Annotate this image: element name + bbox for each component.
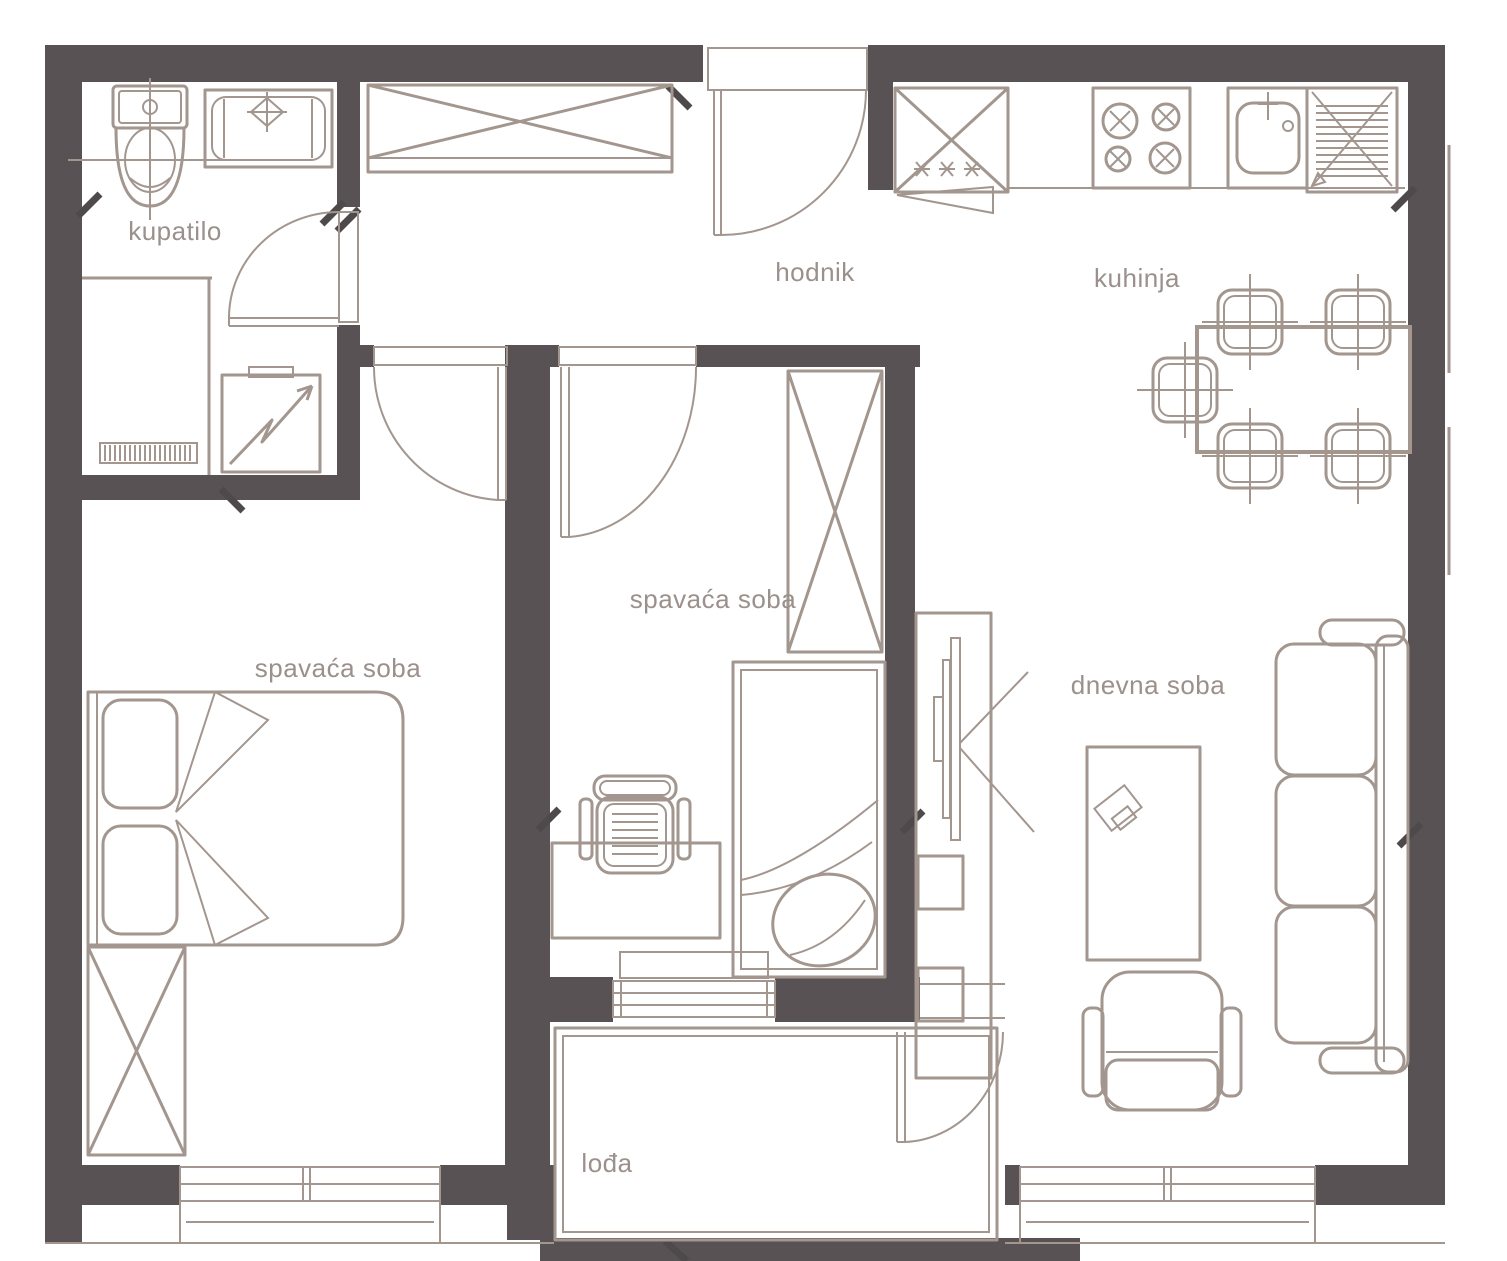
- desk-icon: [552, 843, 720, 938]
- double-bed-icon: [88, 692, 403, 945]
- wardrobe-icon: [88, 947, 185, 1155]
- armchair-icon: [1083, 972, 1241, 1110]
- radiator-icon: [100, 443, 197, 463]
- bathroom-niche-lines: [82, 278, 212, 475]
- dining-chair-icon: [1310, 274, 1406, 370]
- tv-cabinet-icon: [916, 613, 1034, 1078]
- dining-chair-icon: [1202, 408, 1298, 504]
- single-bed-icon: [733, 662, 888, 980]
- dining-table-icon: [1137, 274, 1410, 504]
- bathtub-icon: [205, 90, 332, 167]
- tall-wardrobe-icon: [788, 371, 882, 652]
- dining-chair-icon: [1310, 408, 1406, 504]
- loggia-glazing: [555, 1028, 997, 1240]
- dining-chair-icon: [1202, 274, 1298, 370]
- dishwasher-icon: [1307, 88, 1397, 192]
- coffee-table-icon: [1087, 747, 1200, 960]
- desk-chair-icon: [580, 776, 690, 873]
- room-label-kuhinja: kuhinja: [1094, 263, 1180, 293]
- sofa-icon: [1276, 620, 1408, 1073]
- dining-chair-icon: [1137, 342, 1233, 438]
- floor-plan-page: kupatilo hodnik kuhinja spavaća soba spa…: [0, 0, 1507, 1261]
- room-label-spavaca-soba-2: spavaća soba: [630, 584, 796, 614]
- room-label-kupatilo: kupatilo: [128, 216, 222, 246]
- room-labels: kupatilo hodnik kuhinja spavaća soba spa…: [128, 216, 1225, 1178]
- bedroom-left-door: [374, 347, 507, 500]
- fridge-freezer-icon: [895, 88, 1008, 213]
- window-bedroom-loggia: [613, 952, 775, 1017]
- washing-machine-icon: [222, 367, 320, 472]
- hall-wardrobe-icon: [368, 85, 672, 172]
- bathroom-door: [229, 212, 358, 326]
- floor-plan-svg: kupatilo hodnik kuhinja spavaća soba spa…: [0, 0, 1507, 1261]
- room-label-hodnik: hodnik: [775, 257, 855, 287]
- entrance-door: [708, 48, 867, 235]
- stove-icon: [1093, 88, 1190, 188]
- kitchen-sink-icon: [1228, 88, 1307, 188]
- room-label-dnevna-soba: dnevna soba: [1071, 670, 1225, 700]
- room-label-spavaca-soba-1: spavaća soba: [255, 653, 421, 683]
- room-label-lodja: lođa: [581, 1148, 632, 1178]
- bedroom-middle-door: [559, 347, 696, 537]
